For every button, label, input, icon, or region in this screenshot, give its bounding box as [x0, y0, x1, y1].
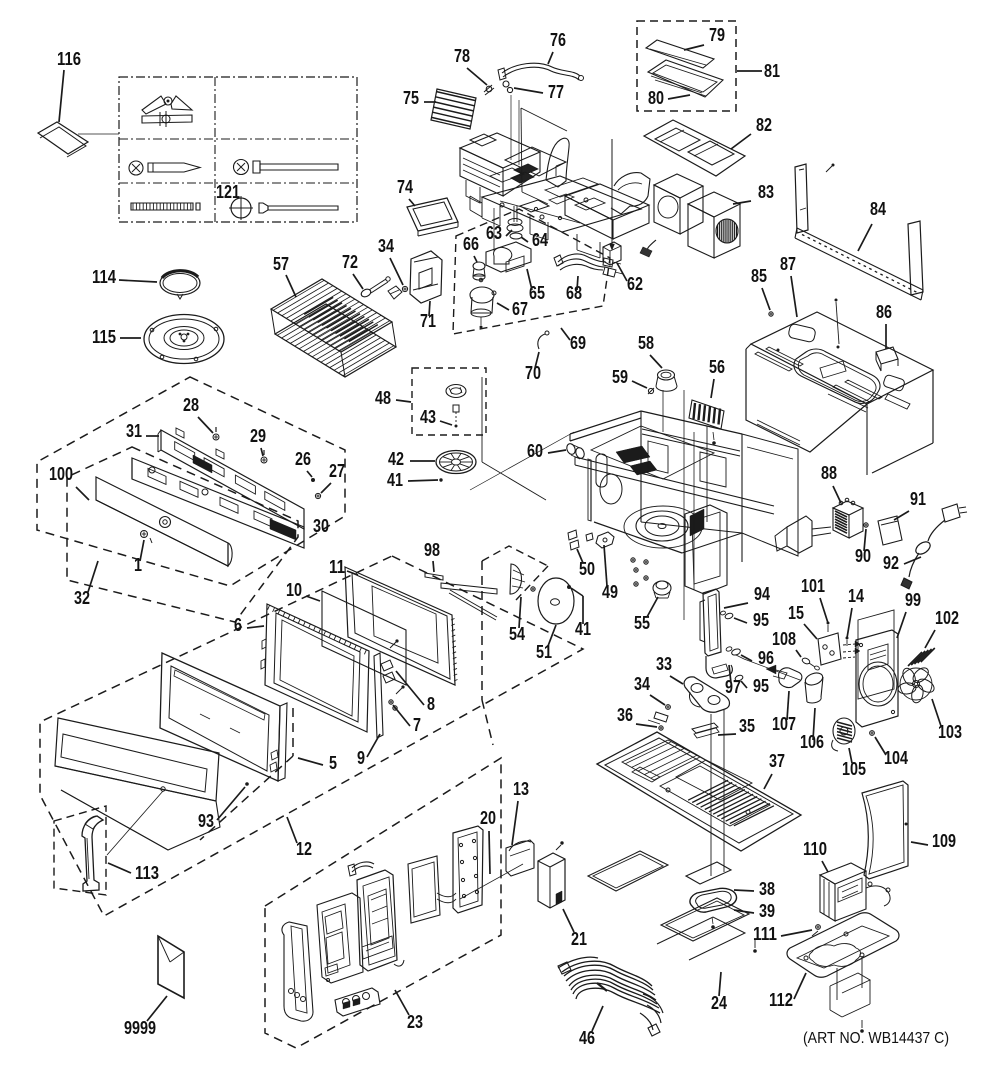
svg-text:56: 56: [709, 356, 725, 377]
svg-text:9999: 9999: [124, 1017, 156, 1038]
svg-text:116: 116: [57, 48, 81, 69]
svg-text:77: 77: [548, 81, 564, 102]
svg-text:82: 82: [756, 114, 772, 135]
svg-text:106: 106: [800, 731, 824, 752]
svg-text:8: 8: [427, 693, 435, 714]
svg-text:102: 102: [935, 607, 959, 628]
svg-text:32: 32: [74, 587, 90, 608]
svg-text:94: 94: [754, 583, 771, 604]
svg-text:9: 9: [357, 747, 365, 768]
svg-text:57: 57: [273, 253, 289, 274]
svg-text:31: 31: [126, 420, 142, 441]
svg-text:100: 100: [49, 463, 73, 484]
svg-text:7: 7: [413, 714, 421, 735]
svg-text:5: 5: [329, 752, 337, 773]
svg-text:62: 62: [627, 273, 643, 294]
svg-text:13: 13: [513, 778, 529, 799]
svg-text:97: 97: [725, 676, 741, 697]
svg-text:95: 95: [753, 609, 769, 630]
svg-text:34: 34: [378, 235, 395, 256]
svg-text:66: 66: [463, 233, 479, 254]
svg-text:68: 68: [566, 282, 582, 303]
svg-text:107: 107: [772, 713, 796, 734]
svg-text:37: 37: [769, 750, 785, 771]
svg-text:11: 11: [329, 556, 345, 577]
svg-text:104: 104: [884, 747, 909, 768]
svg-text:6: 6: [234, 614, 242, 635]
svg-text:108: 108: [772, 628, 796, 649]
svg-text:111: 111: [753, 923, 777, 944]
svg-text:49: 49: [602, 581, 618, 602]
svg-text:70: 70: [525, 362, 541, 383]
svg-text:85: 85: [751, 265, 767, 286]
svg-text:84: 84: [870, 198, 887, 219]
svg-text:(ART NO. WB14437 C): (ART NO. WB14437 C): [803, 1030, 949, 1047]
svg-text:58: 58: [638, 332, 654, 353]
svg-text:54: 54: [509, 623, 526, 644]
svg-text:75: 75: [403, 87, 419, 108]
svg-text:34: 34: [634, 673, 651, 694]
svg-text:67: 67: [512, 298, 528, 319]
svg-text:83: 83: [758, 181, 774, 202]
svg-text:114: 114: [92, 266, 117, 287]
svg-text:109: 109: [932, 830, 956, 851]
svg-text:12: 12: [296, 838, 312, 859]
svg-text:88: 88: [821, 462, 837, 483]
svg-text:105: 105: [842, 758, 866, 779]
svg-text:98: 98: [424, 539, 440, 560]
svg-text:72: 72: [342, 251, 358, 272]
svg-text:101: 101: [801, 575, 825, 596]
svg-text:90: 90: [855, 545, 871, 566]
svg-text:87: 87: [780, 253, 796, 274]
svg-text:43: 43: [420, 406, 436, 427]
svg-text:113: 113: [135, 862, 159, 883]
svg-text:33: 33: [656, 653, 672, 674]
svg-text:10: 10: [286, 579, 302, 600]
svg-text:36: 36: [617, 704, 633, 725]
svg-text:86: 86: [876, 301, 892, 322]
svg-text:39: 39: [759, 900, 775, 921]
svg-text:38: 38: [759, 878, 775, 899]
svg-text:99: 99: [905, 589, 921, 610]
svg-text:110: 110: [803, 838, 827, 859]
svg-text:28: 28: [183, 394, 199, 415]
svg-text:80: 80: [648, 87, 664, 108]
svg-text:42: 42: [388, 448, 404, 469]
svg-text:27: 27: [329, 460, 345, 481]
svg-text:64: 64: [532, 229, 549, 250]
svg-text:79: 79: [709, 24, 725, 45]
svg-text:81: 81: [764, 60, 780, 81]
svg-text:92: 92: [883, 552, 899, 573]
svg-text:15: 15: [788, 602, 804, 623]
svg-text:59: 59: [612, 366, 628, 387]
svg-text:35: 35: [739, 715, 755, 736]
svg-text:48: 48: [375, 387, 391, 408]
svg-text:74: 74: [397, 176, 414, 197]
svg-text:71: 71: [420, 310, 436, 331]
svg-text:93: 93: [198, 810, 214, 831]
svg-text:78: 78: [454, 45, 470, 66]
svg-text:14: 14: [848, 585, 865, 606]
svg-text:41: 41: [387, 469, 403, 490]
svg-text:76: 76: [550, 29, 566, 50]
svg-text:30: 30: [313, 515, 329, 536]
svg-text:112: 112: [769, 989, 793, 1010]
svg-text:115: 115: [92, 326, 116, 347]
svg-text:69: 69: [570, 332, 586, 353]
svg-text:29: 29: [250, 425, 266, 446]
svg-text:95: 95: [753, 675, 769, 696]
svg-text:103: 103: [938, 721, 962, 742]
svg-text:26: 26: [295, 448, 311, 469]
svg-text:91: 91: [910, 488, 926, 509]
svg-text:20: 20: [480, 807, 496, 828]
